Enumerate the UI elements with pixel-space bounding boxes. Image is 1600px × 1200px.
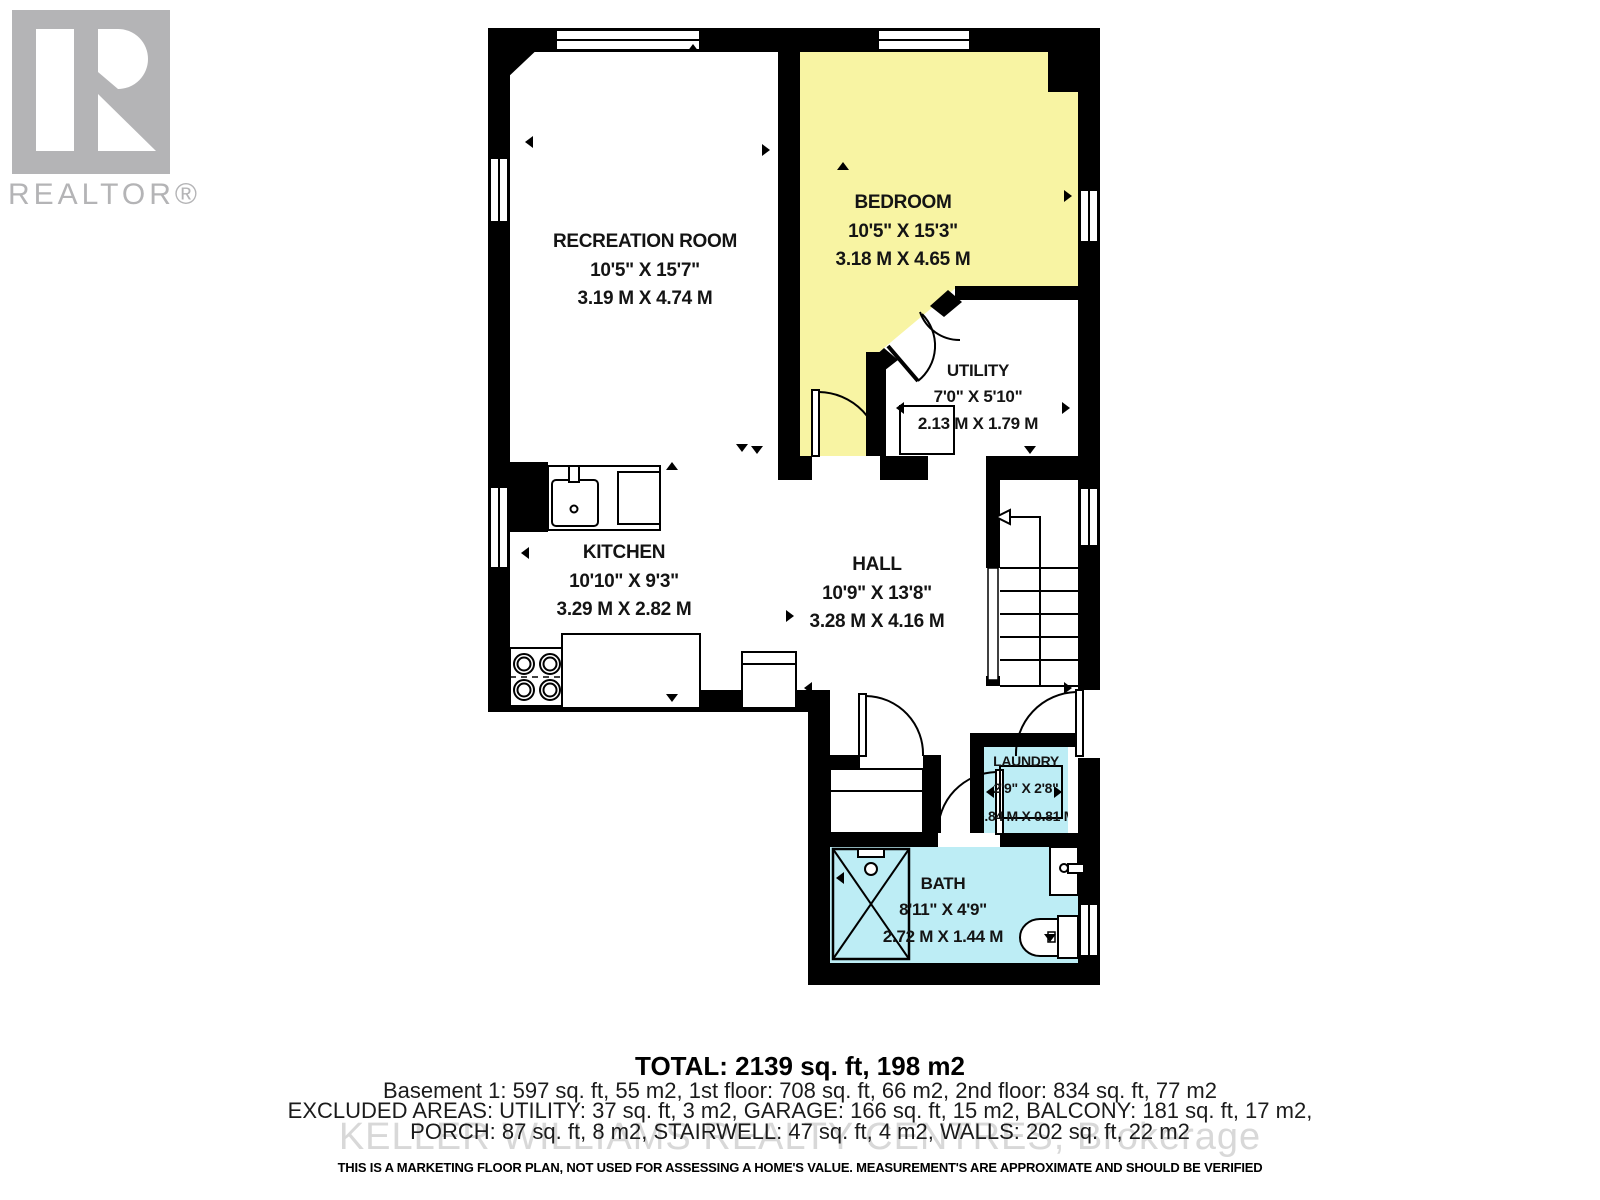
- room-label-recreation: RECREATION ROOM 10'5" X 15'7" 3.19 M X 4…: [553, 228, 737, 314]
- closet: [830, 769, 923, 833]
- kitchen-imperial: 10'10" X 9'3": [557, 568, 692, 597]
- utility-imperial: 7'0" X 5'10": [918, 384, 1038, 410]
- room-label-kitchen: KITCHEN 10'10" X 9'3" 3.29 M X 2.82 M: [557, 539, 692, 625]
- hall-name: HALL: [810, 551, 945, 580]
- recreation-imperial: 10'5" X 15'7": [553, 257, 737, 286]
- room-label-bedroom: BEDROOM 10'5" X 15'3" 3.18 M X 4.65 M: [836, 189, 971, 275]
- room-label-bath: BATH 8'11" X 4'9" 2.72 M X 1.44 M: [883, 871, 1003, 950]
- floor-plan-page: REALTOR®: [0, 0, 1600, 1200]
- floor-plan-drawing: [0, 0, 1600, 1200]
- excluded-areas-line-2: PORCH: 87 sq. ft, 8 m2, STAIRWELL: 47 sq…: [0, 1119, 1600, 1145]
- kitchen-appliance: [618, 472, 660, 524]
- kitchen-name: KITCHEN: [557, 539, 692, 568]
- kitchen-faucet: [569, 466, 579, 482]
- hall-imperial: 10'9" X 13'8": [810, 580, 945, 609]
- closet-door: [859, 694, 866, 756]
- toilet-tank: [1058, 916, 1078, 958]
- shower-valve: [858, 849, 884, 857]
- kitchen-island: [742, 652, 796, 708]
- room-label-utility: UTILITY 7'0" X 5'10" 2.13 M X 1.79 M: [918, 358, 1038, 437]
- kitchen-sink: [552, 480, 598, 526]
- room-label-hall: HALL 10'9" X 13'8" 3.28 M X 4.16 M: [810, 551, 945, 637]
- entry-door: [1076, 690, 1083, 756]
- bedroom-door: [812, 390, 819, 456]
- utility-metric: 2.13 M X 1.79 M: [918, 411, 1038, 437]
- bedroom-imperial: 10'5" X 15'3": [836, 218, 971, 247]
- bath-imperial: 8'11" X 4'9": [883, 897, 1003, 923]
- bedroom-name: BEDROOM: [836, 189, 971, 218]
- laundry-name: LAUNDRY: [993, 748, 1059, 775]
- hall-metric: 3.28 M X 4.16 M: [810, 608, 945, 637]
- kitchen-metric: 3.29 M X 2.82 M: [557, 596, 692, 625]
- utility-name: UTILITY: [918, 358, 1038, 384]
- recreation-metric: 3.19 M X 4.74 M: [553, 285, 737, 314]
- shower-head-icon: [865, 863, 877, 875]
- stairs: [988, 510, 1078, 686]
- bath-name: BATH: [883, 871, 1003, 897]
- kitchen-counter-lower: [562, 634, 700, 708]
- bath-metric: 2.72 M X 1.44 M: [883, 924, 1003, 950]
- bedroom-metric: 3.18 M X 4.65 M: [836, 246, 971, 275]
- stairs-direction-line: [1010, 517, 1040, 568]
- laundry-imperial: 2'9" X 2'8": [994, 775, 1059, 802]
- recreation-name: RECREATION ROOM: [553, 228, 737, 257]
- laundry-metric: 0.84 M X 0.81 M: [984, 803, 1068, 830]
- room-label-laundry: LAUNDRY 2'9" X 2'8" 0.84 M X 0.81 M: [984, 748, 1068, 832]
- disclaimer-line: THIS IS A MARKETING FLOOR PLAN, NOT USED…: [0, 1160, 1600, 1175]
